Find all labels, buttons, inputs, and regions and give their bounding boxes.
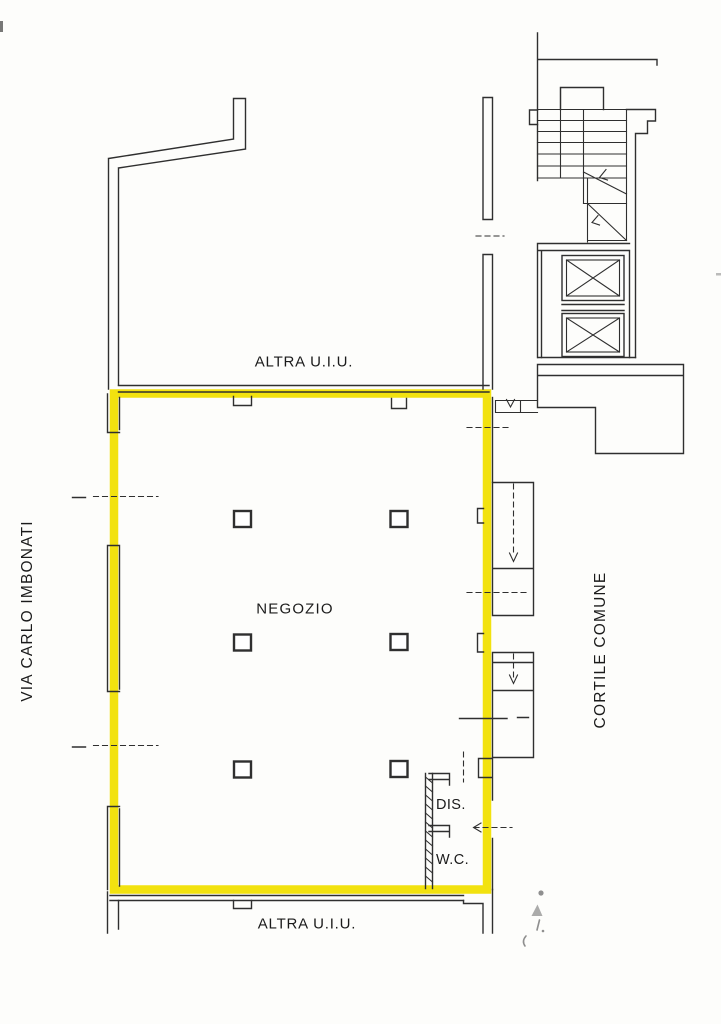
landing-room-walls xyxy=(467,358,684,454)
column-pillar xyxy=(234,511,251,527)
dis-wc-walls xyxy=(426,774,513,889)
other-unit-bottom-label: ALTRA U.I.U. xyxy=(258,916,357,933)
street-label: VIA CARLO IMBONATI xyxy=(19,520,37,702)
floor-plan-drawing xyxy=(0,0,721,1024)
elevator-shaft-b xyxy=(562,314,624,357)
elevator-shaft-divider xyxy=(562,305,624,311)
column-pillar xyxy=(234,762,251,778)
other-unit-top-label: ALTRA U.I.U. xyxy=(255,354,354,371)
column-pillar xyxy=(391,761,408,777)
elevator-x-icon xyxy=(567,260,620,296)
unit-highlight-boundary xyxy=(114,394,487,890)
shop-label: NEGOZIO xyxy=(256,601,334,618)
stair-down-arrow-icon xyxy=(592,216,600,226)
column-pillar xyxy=(234,635,251,651)
stairwell-walls xyxy=(530,33,658,358)
right-upper-wall xyxy=(476,98,504,390)
stair-down-arrow-icon xyxy=(510,553,518,562)
courtyard-stairs xyxy=(460,398,534,890)
elevator-shaft-a xyxy=(562,256,624,301)
stair-treads xyxy=(538,88,627,241)
street-side-walls xyxy=(73,99,246,890)
columns xyxy=(234,511,408,778)
column-pillar xyxy=(391,634,408,650)
column-pillar xyxy=(391,511,408,527)
elevator-x-icon xyxy=(567,318,620,352)
courtyard-label: CORTILE COMUNE xyxy=(592,572,610,729)
dis-room-label: DIS. xyxy=(436,797,466,813)
pencil-marks xyxy=(523,890,544,946)
floor-plan-page: VIA CARLO IMBONATI CORTILE COMUNE ALTRA … xyxy=(0,0,721,1024)
winder-stairs xyxy=(584,170,627,243)
wc-room-label: W.C. xyxy=(436,852,469,868)
